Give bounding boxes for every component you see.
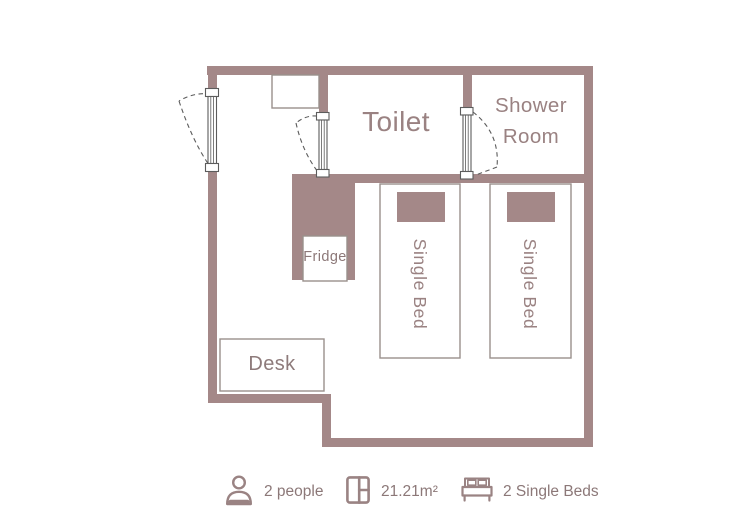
cabinet (272, 75, 319, 108)
toilet-room-label: Toilet (336, 106, 456, 138)
area-legend-item: 21.21m² (346, 474, 438, 506)
single-bed-1-label: Single Bed (410, 224, 430, 344)
floorplan-drawing (0, 0, 750, 530)
door-swing-arc (296, 116, 317, 123)
door-cap (206, 164, 219, 172)
door-swing-arc (296, 123, 317, 170)
door-leaf (463, 115, 471, 172)
single-bed-2-label: Single Bed (520, 224, 540, 344)
pillow-1 (397, 192, 445, 222)
capacity-legend-item: 2 people (225, 474, 323, 506)
toilet-door (296, 113, 329, 178)
lower-left-wall (208, 394, 331, 403)
left-wall-lower (208, 171, 217, 403)
beds-legend-label: 2 Single Beds (503, 483, 599, 501)
entrance-door (179, 89, 219, 172)
door-leaf (319, 120, 327, 170)
shower-room-label: Shower Room (476, 90, 586, 152)
door-leaf (208, 97, 217, 164)
left-wall-upper (208, 66, 217, 89)
toilet-left-wall (319, 75, 328, 113)
top-wall (207, 66, 593, 75)
floorplan-canvas: Toilet Shower Room Fridge Desk Single Be… (0, 0, 750, 530)
floorplan-icon (346, 476, 370, 504)
bed-icon (461, 477, 493, 503)
pillow-2 (507, 192, 555, 222)
door-cap (317, 170, 330, 178)
door-cap (461, 108, 474, 116)
fridge-label: Fridge (303, 249, 347, 266)
door-cap (317, 113, 330, 121)
door-cap (461, 172, 474, 180)
desk-label: Desk (220, 352, 324, 376)
toilet-shower-divider-wall (463, 75, 472, 108)
door-cap (206, 89, 219, 97)
beds-legend-item: 2 Single Beds (461, 474, 599, 506)
person-icon (225, 475, 253, 506)
capacity-legend-label: 2 people (264, 483, 323, 501)
bottom-wall (322, 438, 593, 447)
area-legend-label: 21.21m² (381, 483, 438, 501)
door-swing-arc (179, 101, 209, 165)
